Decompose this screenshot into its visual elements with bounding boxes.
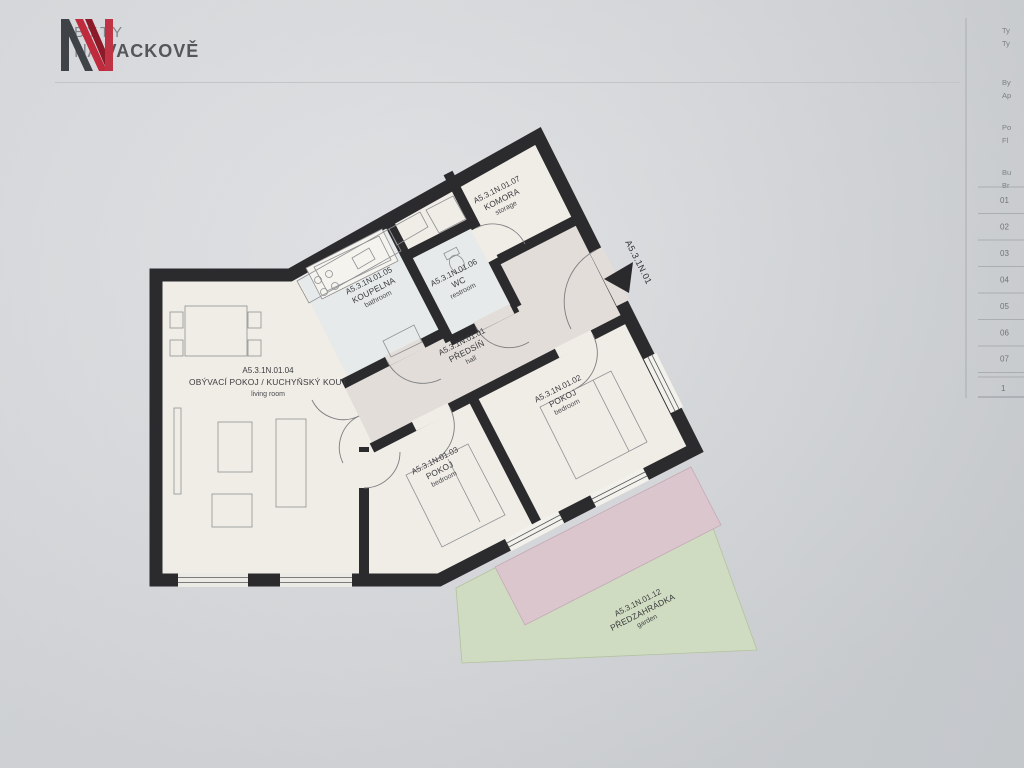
floor-plan-svg: A5.3.1N.01 A5.3.1N.01.01 PŘEDSÍŇ hall A5… <box>0 0 1024 768</box>
field-0b: Ty <box>1002 39 1010 48</box>
row-4: 05 <box>1000 302 1009 311</box>
field-1b: Ap <box>1002 91 1011 100</box>
field-1a: By <box>1002 78 1011 87</box>
living-name-en: living room <box>251 391 285 398</box>
screenshot-root: { "header": { "brand_line1": "BYTY", "br… <box>0 0 1024 768</box>
row-6: 07 <box>1000 355 1009 364</box>
side-panel-fields: Ty Ty By Ap Po Fl Bu Br <box>1002 26 1011 190</box>
living-code: A5.3.1N.01.04 <box>242 366 294 375</box>
field-0a: Ty <box>1002 26 1010 35</box>
side-panel-values: 01 02 03 04 05 06 07 1 <box>1000 196 1009 393</box>
living-name: OBÝVACÍ POKOJ / KUCHYŇSKÝ KOUT <box>189 377 347 387</box>
field-3a: Bu <box>1002 168 1011 177</box>
row-5: 06 <box>1000 329 1009 338</box>
field-2b: Fl <box>1002 136 1009 145</box>
row-1: 02 <box>1000 223 1009 232</box>
field-3b: Br <box>1002 181 1010 190</box>
row-2: 03 <box>1000 249 1009 258</box>
total-row: 1 <box>1001 384 1006 393</box>
side-panel: Ty Ty By Ap Po Fl Bu Br 01 02 03 04 05 <box>966 18 1024 398</box>
side-panel-table <box>978 187 1024 397</box>
field-2a: Po <box>1002 123 1011 132</box>
row-0: 01 <box>1000 196 1009 205</box>
row-3: 04 <box>1000 276 1009 285</box>
